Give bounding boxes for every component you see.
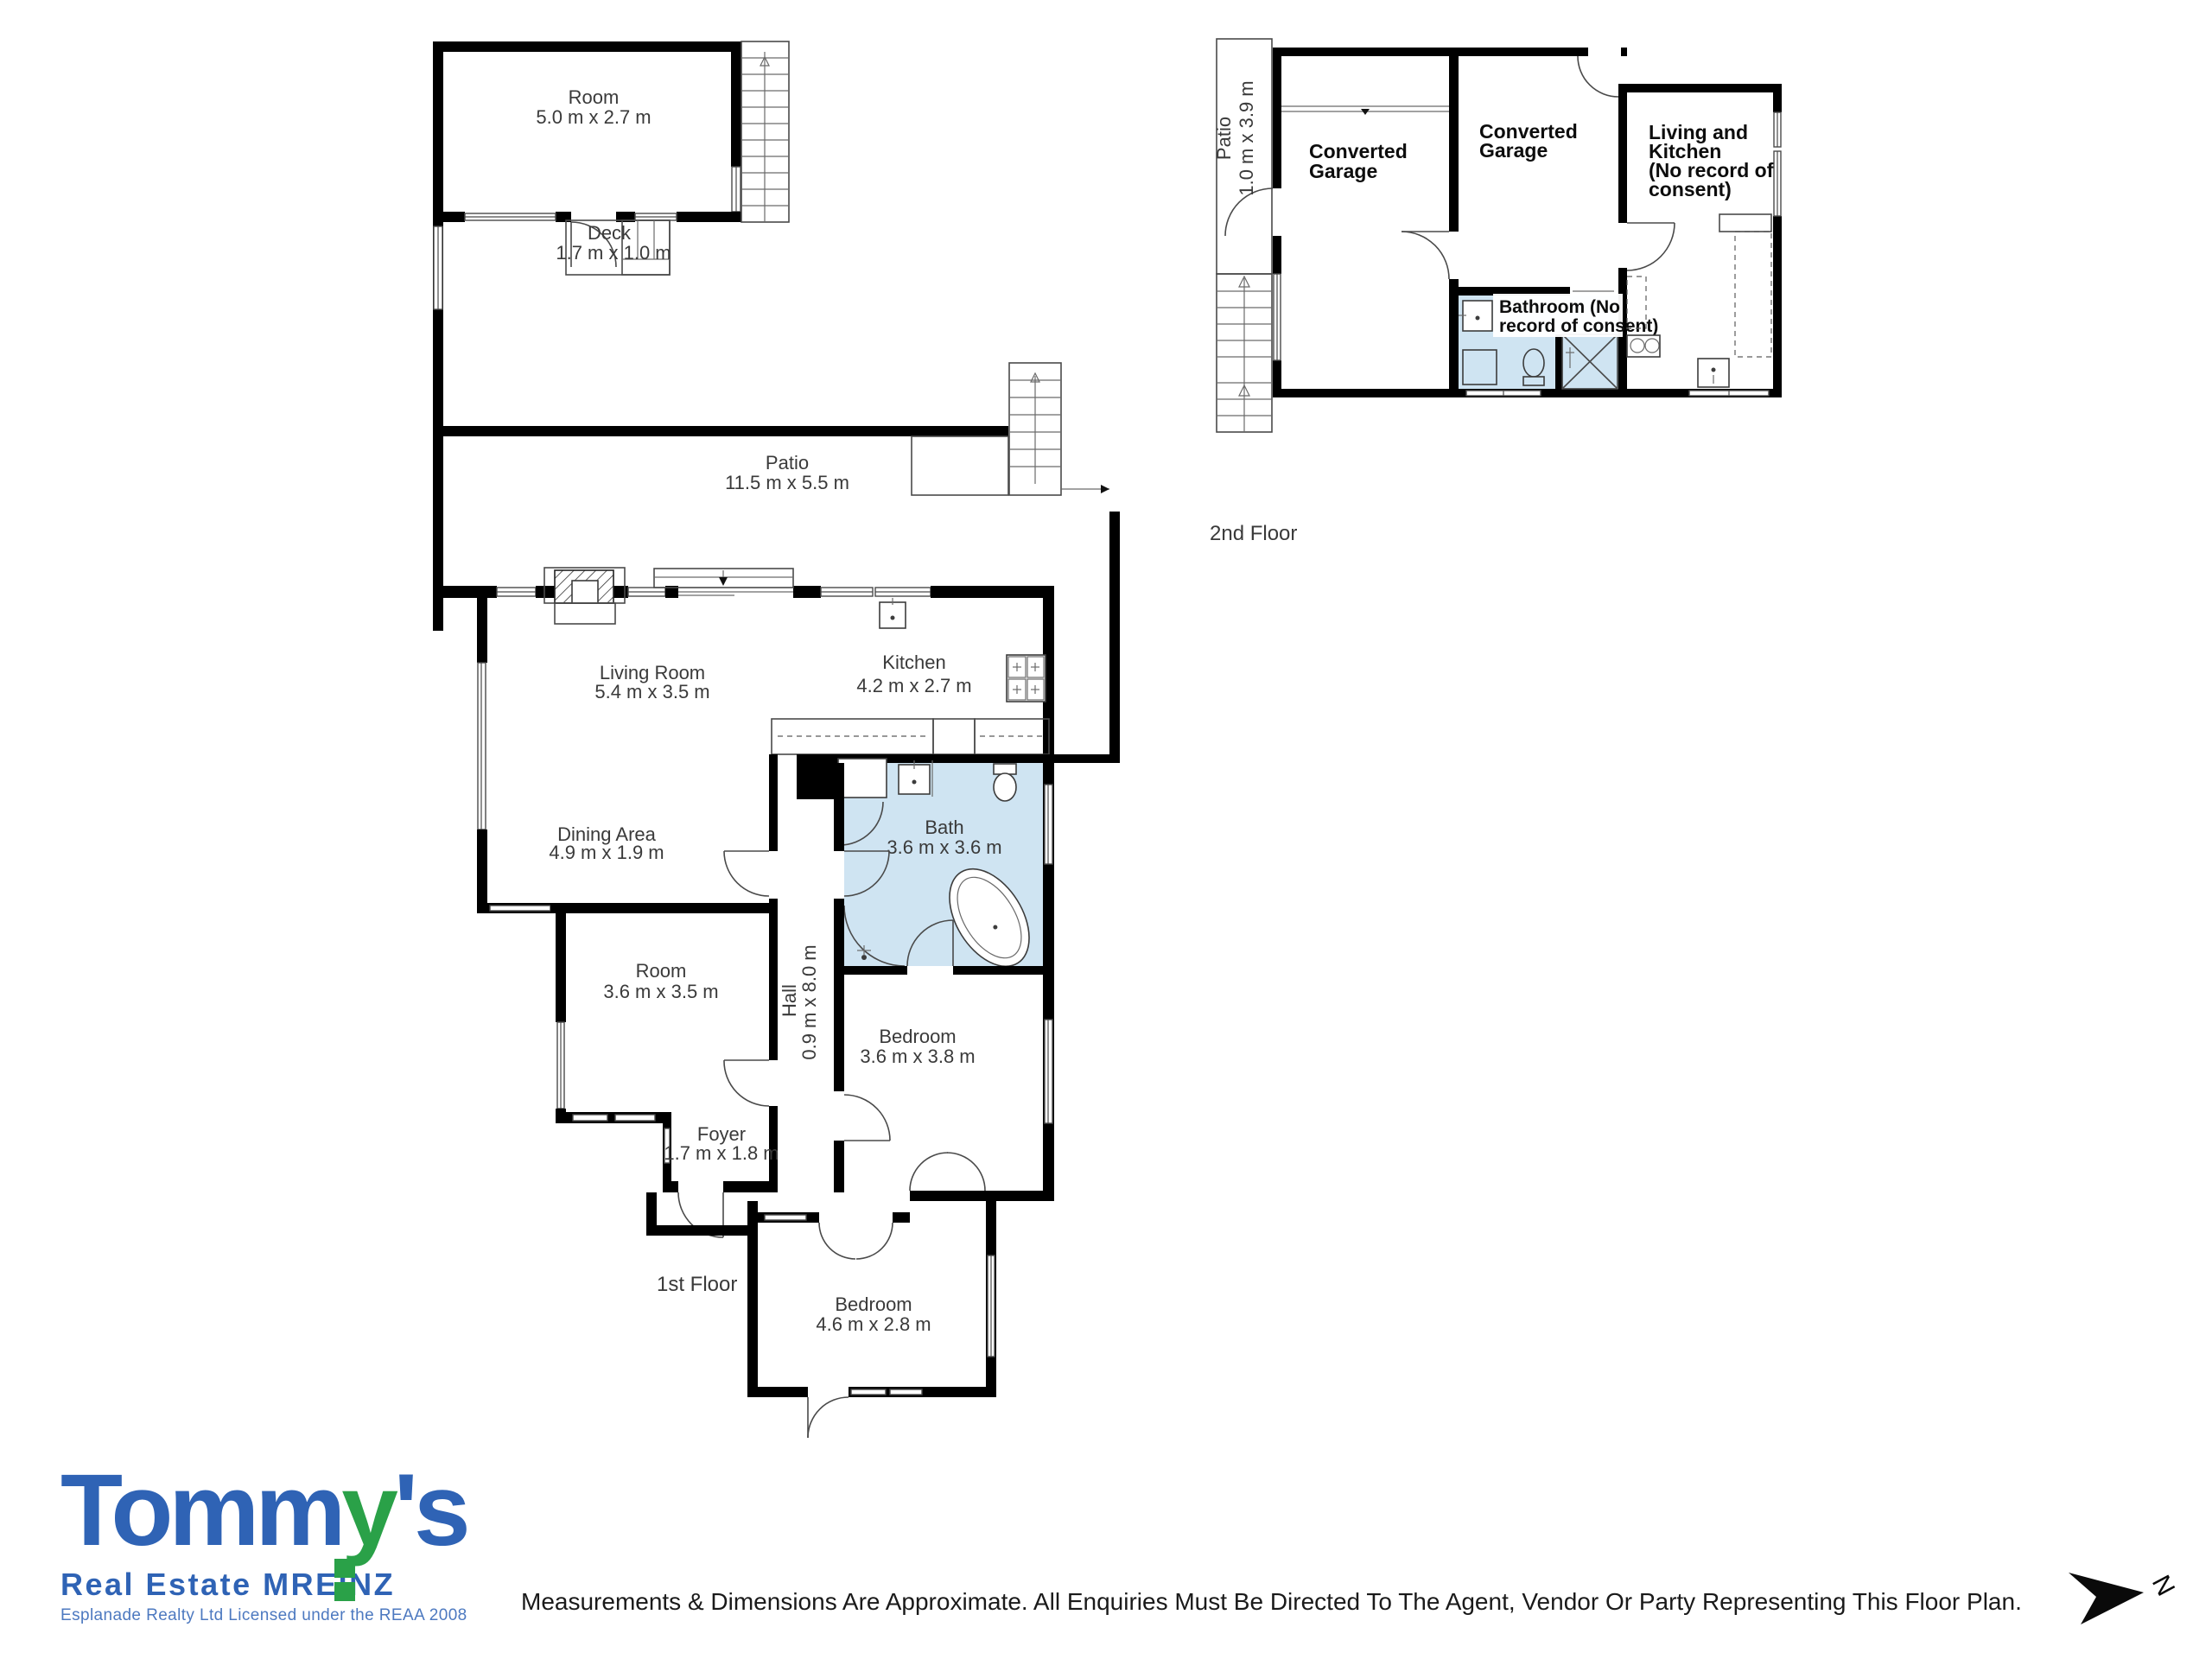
north-label: N (2146, 1571, 2180, 1601)
floor-plan-svg: Room 5.0 m x 2.7 m Deck 1.7 m x 1.0 m Pa… (0, 0, 2212, 1659)
stove-second-floor (1627, 335, 1660, 357)
room-label-bedroom-mid: Bedroom (879, 1026, 956, 1047)
bedroom-bottom: Bedroom 4.6 m x 2.8 m (747, 1201, 996, 1438)
room-label-bath: Bath (925, 817, 963, 838)
room-label-room-top: Room (569, 86, 620, 108)
patio-second-floor: Patio 1.0 m x 3.9 m (1213, 39, 1273, 274)
room-dims-hall: 0.9 m x 8.0 m (798, 944, 820, 1059)
room-dims-room-top: 5.0 m x 2.7 m (536, 106, 651, 128)
room-label-living-kitchen-line4: consent) (1649, 178, 1732, 200)
room-label-hall: Hall (779, 984, 800, 1017)
room-label-bathroom2-line1: Bathroom (No (1499, 297, 1620, 317)
room-dims-room-mid: 3.6 m x 3.5 m (603, 981, 718, 1002)
room-label-bedroom-bottom: Bedroom (835, 1294, 912, 1315)
room-dims-bedroom-bottom: 4.6 m x 2.8 m (816, 1313, 931, 1335)
logo-wordmark: Tommy's (60, 1464, 544, 1558)
stairs-patio (1009, 363, 1061, 495)
fireplace (544, 568, 625, 624)
room-dims-kitchen: 4.2 m x 2.7 m (856, 675, 971, 696)
bedroom-middle: Bedroom 3.6 m x 3.8 m (860, 1026, 1054, 1214)
floorplan-page: Room 5.0 m x 2.7 m Deck 1.7 m x 1.0 m Pa… (0, 0, 2212, 1659)
logo-part-green: y (341, 1453, 394, 1567)
room-label-garage2-line2: Garage (1479, 139, 1548, 162)
room-dims-bedroom-mid: 3.6 m x 3.8 m (860, 1046, 975, 1067)
disclaimer-text: Measurements & Dimensions Are Approximat… (521, 1588, 2022, 1616)
second-floor-label: 2nd Floor (1210, 522, 1297, 545)
sink-second-floor (1698, 359, 1729, 387)
logo-license-text: Esplanade Realty Ltd Licensed under the … (60, 1606, 544, 1625)
logo-part-blue2: 's (394, 1453, 467, 1567)
detached-room: Room 5.0 m x 2.7 m Deck 1.7 m x 1.0 m (433, 41, 789, 631)
room-label-garage1-line2: Garage (1309, 160, 1377, 182)
first-floor-plan: Room 5.0 m x 2.7 m Deck 1.7 m x 1.0 m Pa… (433, 41, 1120, 1438)
room-dims-patio: 11.5 m x 5.5 m (725, 472, 849, 493)
stove (1007, 655, 1046, 702)
kitchen-sink (880, 598, 906, 628)
dining-area: Dining Area 4.9 m x 1.9 m (477, 598, 664, 913)
logo-part-blue1: Tomm (60, 1453, 341, 1567)
logo-subtitle: Real Estate MREINZ (60, 1567, 544, 1603)
room-label-room-mid: Room (636, 960, 687, 982)
room-dims-patio2: 1.0 m x 3.9 m (1236, 80, 1257, 195)
north-arrow: N (2069, 1571, 2180, 1624)
room-dims-deck: 1.7 m x 1.0 m (556, 242, 671, 264)
room-dims-bath: 3.6 m x 3.6 m (887, 836, 1001, 858)
room-label-bathroom2-line2: record of consent) (1499, 316, 1658, 336)
logo-key-icon: y (341, 1453, 394, 1567)
second-floor-plan: Patio 1.0 m x 3.9 m (1210, 39, 1782, 545)
agency-logo: Tommy's Real Estate MREINZ Esplanade Rea… (60, 1464, 544, 1625)
logo-key-teeth (334, 1559, 357, 1605)
patio-first-floor: Patio 11.5 m x 5.5 m (433, 363, 1120, 763)
bath-sink (899, 760, 932, 797)
bath-first-floor: Bath 3.6 m x 3.6 m (797, 754, 1120, 981)
toilet-second-floor (1523, 349, 1544, 385)
room-label-deck: Deck (588, 222, 632, 244)
room-middle: Room 3.6 m x 3.5 m (550, 903, 778, 1123)
stairs-second-floor (1217, 274, 1272, 432)
kitchen-counter (772, 719, 1049, 754)
room-dims-living-room: 5.4 m x 3.5 m (594, 681, 709, 702)
kitchen-second-floor (1627, 214, 1771, 387)
room-dims-dining: 4.9 m x 1.9 m (549, 842, 664, 863)
room-dims-foyer: 1.7 m x 1.8 m (664, 1142, 779, 1164)
toilet (994, 764, 1016, 801)
room-label-patio2: Patio (1213, 117, 1235, 160)
room-label-kitchen: Kitchen (882, 652, 945, 673)
room-label-patio: Patio (766, 452, 809, 474)
shower-second-floor (1562, 334, 1618, 389)
stairs-detached-room (741, 41, 789, 222)
first-floor-label: 1st Floor (657, 1273, 737, 1296)
